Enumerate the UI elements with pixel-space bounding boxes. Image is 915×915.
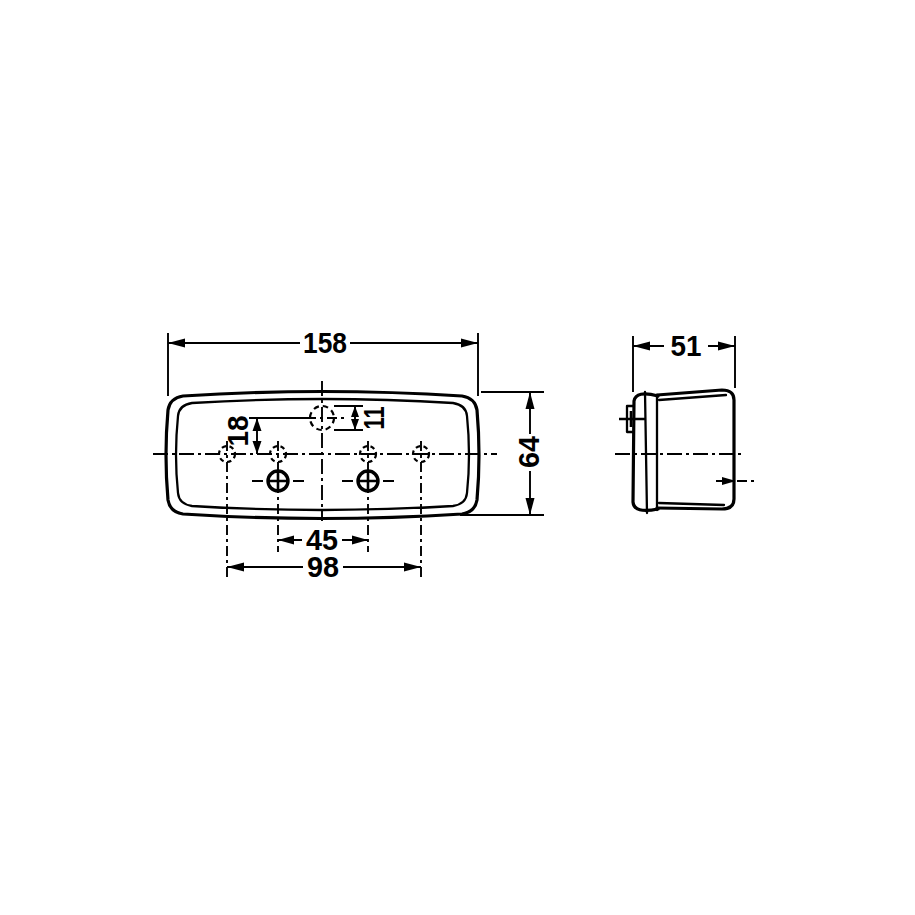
mounting-hole-1 xyxy=(219,441,235,578)
dim-depth-51: 51 xyxy=(633,329,735,392)
side-screw-axis xyxy=(716,477,757,485)
lamp-technical-drawing: 158 64 18 11 45 xyxy=(0,0,915,915)
dim-label-158: 158 xyxy=(303,326,347,359)
arrowhead-top xyxy=(526,392,535,409)
side-view xyxy=(615,390,757,513)
dim-label-18: 18 xyxy=(221,416,254,447)
dim-label-98: 98 xyxy=(307,550,339,583)
side-body-inner-bottom-line xyxy=(659,503,724,505)
arrowhead-right xyxy=(461,339,478,348)
side-body-inner-top-line xyxy=(659,395,726,400)
arrowhead-left xyxy=(633,342,650,351)
dim-offset-18: 18 xyxy=(221,416,309,455)
arrowhead-right xyxy=(404,563,421,572)
screw-head-left xyxy=(252,470,304,492)
arrowhead-bottom xyxy=(526,498,535,515)
side-body-outline xyxy=(657,390,734,509)
arrowhead-right xyxy=(718,342,735,351)
dim-label-64: 64 xyxy=(512,436,545,468)
dim-width-158: 158 xyxy=(168,326,478,396)
dim-label-11: 11 xyxy=(357,407,390,430)
arrowhead-left xyxy=(168,339,185,348)
mounting-hole-3 xyxy=(360,441,376,552)
mounting-hole-2 xyxy=(270,441,286,552)
dim-spacing-98: 98 xyxy=(227,550,421,583)
dim-label-51: 51 xyxy=(671,329,702,362)
mounting-hole-4 xyxy=(413,441,429,578)
side-lens-rim-line xyxy=(645,392,647,513)
center-hole xyxy=(306,406,348,430)
screw-head-right xyxy=(342,470,394,492)
arrowhead-left xyxy=(227,563,244,572)
arrowhead-right xyxy=(352,536,368,545)
drawing-canvas: 158 64 18 11 45 xyxy=(0,0,915,915)
arrowhead-left xyxy=(278,536,294,545)
